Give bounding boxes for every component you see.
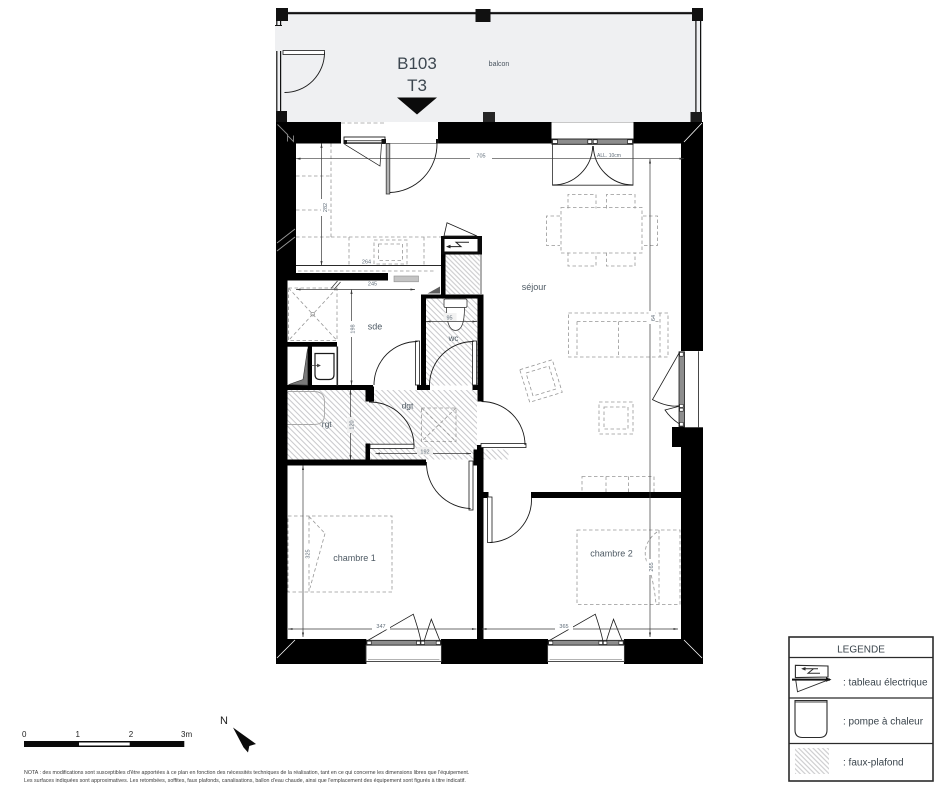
svg-text:325: 325 bbox=[306, 549, 312, 558]
svg-text:Les surfaces indiquées sont ap: Les surfaces indiquées sont approximativ… bbox=[24, 778, 466, 784]
svg-text:LEGENDE: LEGENDE bbox=[837, 645, 885, 656]
svg-text:wc: wc bbox=[448, 334, 459, 343]
svg-text:T3: T3 bbox=[407, 76, 427, 95]
svg-text:B103: B103 bbox=[397, 54, 437, 73]
svg-text:95: 95 bbox=[446, 316, 452, 322]
svg-text:NOTA : des modifications sont: NOTA : des modifications sont susceptibl… bbox=[24, 770, 469, 776]
svg-text:192: 192 bbox=[420, 450, 429, 456]
svg-text:chambre 1: chambre 1 bbox=[333, 553, 376, 563]
svg-text:365: 365 bbox=[559, 624, 568, 630]
svg-text:3m: 3m bbox=[181, 730, 192, 739]
svg-text:: faux-plafond: : faux-plafond bbox=[843, 758, 904, 769]
svg-text:705: 705 bbox=[476, 154, 485, 160]
svg-text:1: 1 bbox=[75, 730, 80, 739]
svg-text:séjour: séjour bbox=[522, 282, 547, 292]
svg-text:245: 245 bbox=[368, 282, 377, 288]
svg-text:ALL. 10cm: ALL. 10cm bbox=[597, 153, 621, 159]
svg-text:rgt: rgt bbox=[322, 419, 333, 429]
svg-text:282: 282 bbox=[323, 203, 329, 212]
svg-text:347: 347 bbox=[376, 624, 385, 630]
svg-text:N: N bbox=[220, 715, 228, 727]
svg-text:120: 120 bbox=[350, 420, 356, 429]
svg-text:balcon: balcon bbox=[489, 61, 510, 68]
svg-text:2: 2 bbox=[129, 730, 134, 739]
svg-text:0: 0 bbox=[22, 730, 27, 739]
svg-text:64: 64 bbox=[651, 315, 657, 321]
svg-text:198: 198 bbox=[351, 324, 357, 333]
svg-text:dgt: dgt bbox=[402, 401, 414, 411]
svg-text:: pompe à chaleur: : pompe à chaleur bbox=[843, 717, 924, 728]
svg-text:265: 265 bbox=[649, 562, 655, 571]
svg-text:264: 264 bbox=[362, 260, 371, 266]
svg-text:: tableau électrique: : tableau électrique bbox=[843, 678, 928, 689]
svg-text:chambre 2: chambre 2 bbox=[590, 549, 633, 559]
svg-text:sde: sde bbox=[368, 322, 383, 332]
